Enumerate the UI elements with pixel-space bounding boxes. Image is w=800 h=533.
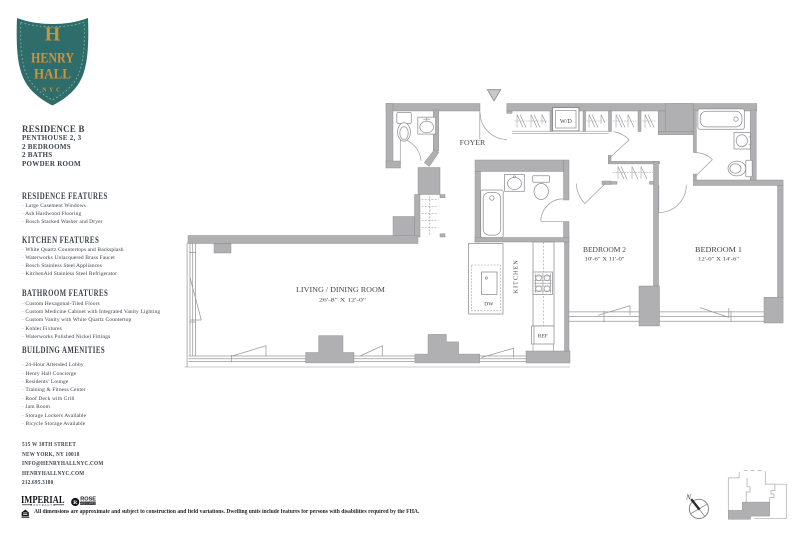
svg-text:FOYER: FOYER <box>460 139 486 147</box>
svg-text:LIVING / DINING ROOM: LIVING / DINING ROOM <box>296 286 386 294</box>
svg-text:W/D: W/D <box>560 118 573 125</box>
svg-text:26'-8" X 12'-0": 26'-8" X 12'-0" <box>319 298 366 304</box>
svg-text:DW: DW <box>484 302 494 308</box>
svg-text:BEDROOM 1: BEDROOM 1 <box>695 247 742 254</box>
svg-text:N: N <box>685 493 692 502</box>
svg-text:BEDROOM 2: BEDROOM 2 <box>583 247 627 254</box>
svg-text:10'-6" X 11'-0": 10'-6" X 11'-0" <box>585 257 625 263</box>
svg-text:12'-0" X 14'-6": 12'-0" X 14'-6" <box>698 257 739 263</box>
svg-text:REF: REF <box>538 333 548 339</box>
svg-text:KITCHEN: KITCHEN <box>512 259 519 293</box>
